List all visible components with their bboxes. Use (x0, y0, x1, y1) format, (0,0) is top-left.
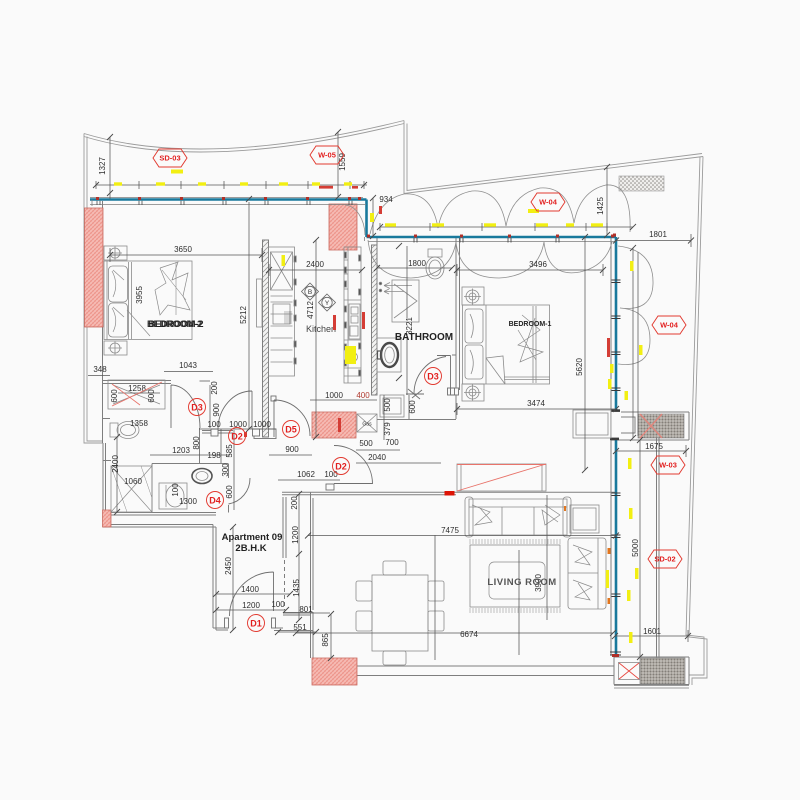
svg-text:600: 600 (408, 400, 417, 414)
svg-text:2400: 2400 (306, 260, 324, 269)
svg-text:2B.H.K: 2B.H.K (235, 543, 266, 554)
svg-text:198: 198 (207, 451, 221, 460)
svg-text:1300: 1300 (179, 497, 197, 506)
svg-text:700: 700 (385, 438, 399, 447)
svg-text:3474: 3474 (527, 399, 545, 408)
svg-text:Gas: Gas (362, 422, 372, 428)
svg-text:1601: 1601 (643, 627, 661, 636)
svg-text:BATHROOM: BATHROOM (395, 332, 453, 343)
svg-text:1258: 1258 (128, 384, 146, 393)
svg-text:801: 801 (299, 605, 313, 614)
svg-text:1327: 1327 (98, 157, 107, 175)
svg-text:1200: 1200 (291, 526, 300, 544)
svg-text:W-04: W-04 (539, 198, 558, 207)
svg-text:2040: 2040 (368, 453, 386, 462)
svg-text:SD-02: SD-02 (654, 555, 675, 564)
svg-text:2450: 2450 (224, 557, 233, 575)
svg-text:BEDROOM-2: BEDROOM-2 (147, 319, 202, 329)
svg-text:600: 600 (147, 389, 156, 403)
svg-text:600: 600 (225, 485, 234, 499)
svg-text:1435: 1435 (292, 579, 301, 597)
svg-text:3955: 3955 (135, 286, 144, 304)
svg-text:D3: D3 (427, 372, 439, 382)
svg-text:500: 500 (359, 439, 373, 448)
svg-text:1043: 1043 (179, 361, 197, 370)
svg-text:600: 600 (110, 389, 119, 403)
svg-text:Apartment 09: Apartment 09 (222, 532, 283, 543)
svg-text:LIVING ROOM: LIVING ROOM (487, 577, 556, 588)
svg-text:1203: 1203 (172, 446, 190, 455)
svg-text:2400: 2400 (111, 455, 120, 473)
svg-text:D5: D5 (285, 425, 297, 435)
svg-text:3650: 3650 (174, 245, 192, 254)
svg-text:400: 400 (356, 391, 370, 400)
svg-text:D4: D4 (209, 496, 221, 506)
svg-text:5620: 5620 (575, 358, 584, 376)
svg-text:W-05: W-05 (318, 151, 336, 160)
svg-text:D2: D2 (231, 432, 243, 442)
svg-text:B: B (308, 289, 312, 296)
svg-text:5212: 5212 (239, 306, 248, 324)
svg-text:1000: 1000 (325, 391, 343, 400)
svg-text:379: 379 (383, 422, 392, 436)
svg-text:5000: 5000 (631, 539, 640, 557)
svg-text:1801: 1801 (649, 230, 667, 239)
svg-text:7475: 7475 (441, 526, 459, 535)
svg-text:348: 348 (93, 365, 107, 374)
svg-text:BEDROOM-1: BEDROOM-1 (509, 321, 552, 328)
svg-text:1675: 1675 (645, 442, 663, 451)
svg-text:SD-03: SD-03 (159, 154, 180, 163)
svg-text:Y: Y (325, 300, 330, 307)
svg-text:800: 800 (192, 436, 201, 450)
svg-text:200: 200 (210, 381, 219, 395)
svg-text:Kitchen: Kitchen (306, 324, 336, 334)
svg-text:D1: D1 (250, 619, 262, 629)
svg-text:1358: 1358 (130, 419, 148, 428)
svg-text:551: 551 (293, 623, 307, 632)
svg-text:100: 100 (271, 600, 285, 609)
svg-text:900: 900 (212, 403, 221, 417)
svg-text:200: 200 (290, 496, 299, 510)
svg-text:6674: 6674 (460, 630, 478, 639)
svg-text:300: 300 (221, 463, 230, 477)
svg-text:865: 865 (321, 633, 330, 647)
svg-text:D3: D3 (191, 403, 203, 413)
svg-text:1060: 1060 (124, 477, 142, 486)
svg-text:500: 500 (383, 398, 392, 412)
svg-text:1400: 1400 (241, 585, 259, 594)
svg-text:900: 900 (285, 445, 299, 454)
svg-text:1800: 1800 (408, 259, 426, 268)
svg-text:4712: 4712 (306, 301, 315, 319)
svg-text:585: 585 (225, 444, 234, 458)
svg-text:1200: 1200 (242, 601, 260, 610)
svg-text:934: 934 (379, 195, 393, 204)
svg-text:1000: 1000 (253, 420, 271, 429)
svg-text:100: 100 (171, 483, 180, 497)
svg-text:1425: 1425 (596, 197, 605, 215)
svg-text:100: 100 (207, 420, 221, 429)
svg-text:D2: D2 (335, 462, 347, 472)
svg-text:3496: 3496 (529, 260, 547, 269)
svg-text:W-04: W-04 (660, 321, 679, 330)
svg-text:1062: 1062 (297, 470, 315, 479)
svg-text:W-03: W-03 (659, 461, 677, 470)
